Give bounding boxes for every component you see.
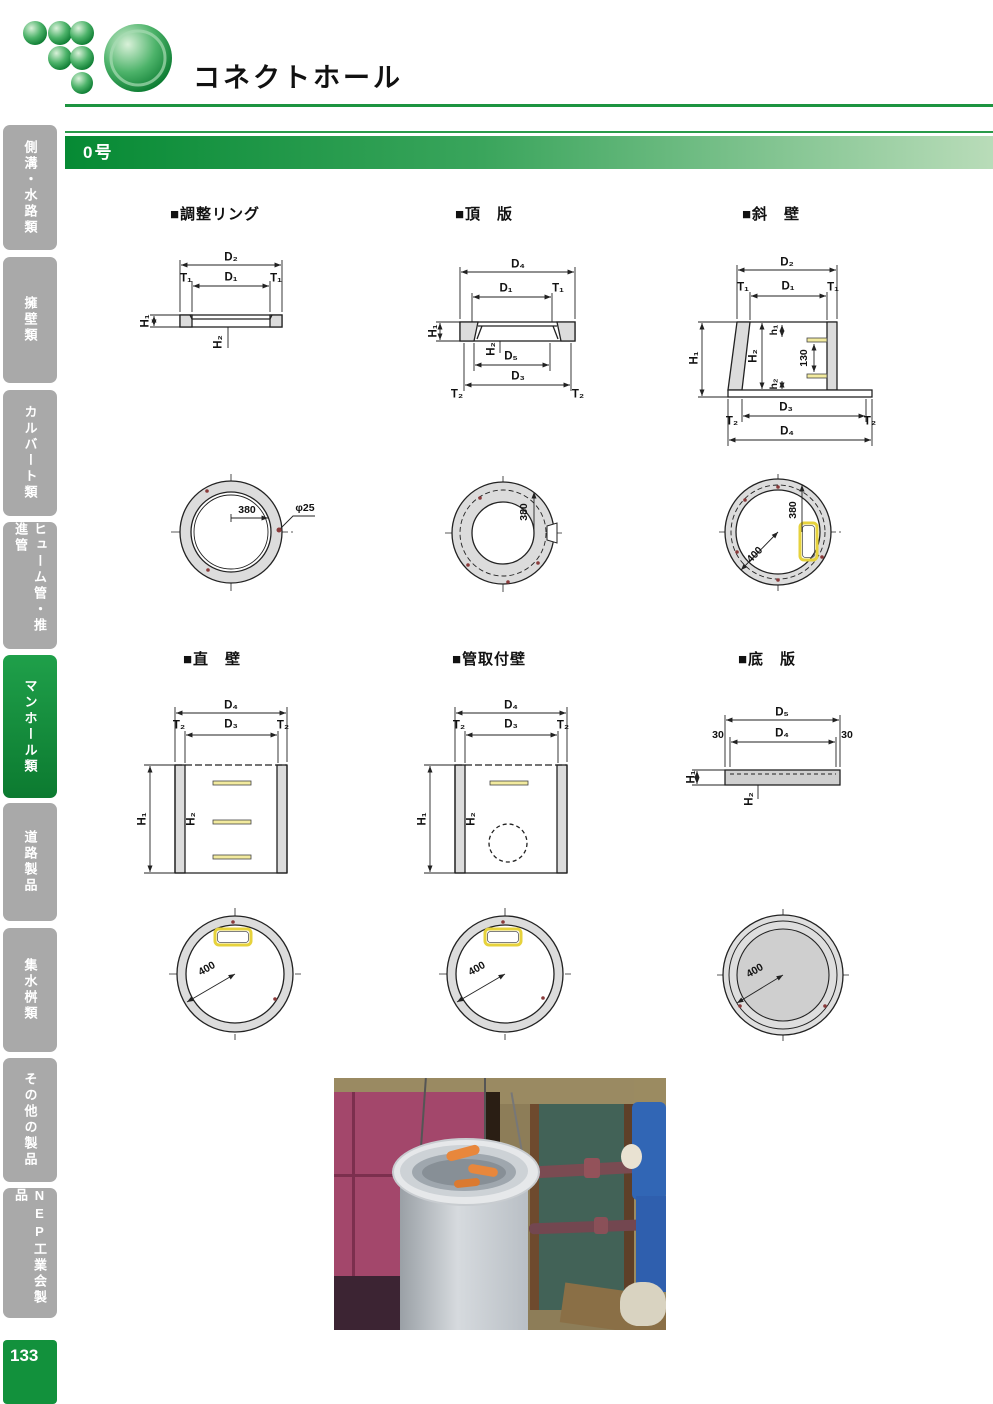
sidebar-tab-gutters[interactable]: 側溝・水路類 <box>3 125 57 250</box>
bottom-slab-plan-drawing <box>715 898 895 1048</box>
bottom-slab-cross-section: D₅ 30 D₄ 30 H₁ H₂ <box>690 695 890 825</box>
catalog-page: { "header": { "title": "コネクトホール" }, "sec… <box>0 0 993 1404</box>
adjust-ring-cross-drawing <box>140 250 340 370</box>
dim-t2-left: T₂ <box>173 720 185 732</box>
straight-wall-cross-section: D₄ T₂ D₃ T₂ H₁ H₂ <box>140 695 320 895</box>
pipe-wall-cross-section: D₄ T₂ D₃ T₂ H₁ H₂ <box>420 695 600 895</box>
tab-label: ヒューム管・推進管 <box>11 522 49 649</box>
tab-label: カルバート類 <box>21 405 40 501</box>
sidebar-tab-manholes-active[interactable]: マンホール類 <box>3 655 57 798</box>
construction-photo <box>334 1078 666 1330</box>
dim-h2: H₂ <box>213 335 225 348</box>
dim-h2-small: h₂ <box>769 378 780 389</box>
dim-d1: D₁ <box>224 272 237 284</box>
dim-t2-left: T₂ <box>453 720 465 732</box>
bottom-slab-plan: 400 <box>715 898 895 1048</box>
tab-label: その他の製品 <box>21 1072 40 1168</box>
title-pipe-wall: ■管取付壁 <box>452 648 526 669</box>
dim-d3: D₃ <box>511 371 525 383</box>
title-slant-wall: ■斜 壁 <box>742 203 800 224</box>
adjust-ring-plan-drawing <box>165 470 345 620</box>
dim-d2: D₂ <box>780 257 793 269</box>
title-top-slab: ■頂 版 <box>455 203 513 224</box>
pipe-wall-plan: 400 <box>435 898 615 1048</box>
dim-h1: H₁ <box>689 351 701 364</box>
dim-t2-left: T₂ <box>726 416 738 428</box>
dim-t1-left: T₁ <box>180 273 192 285</box>
dim-d4: D₄ <box>224 700 238 712</box>
dim-h2: H₂ <box>486 342 498 355</box>
title-adjust-ring: ■調整リング <box>170 203 260 224</box>
dim-t2-right: T₂ <box>557 720 569 732</box>
top-slab-plan: 380 <box>435 470 615 620</box>
slant-wall-plan: 380 400 <box>715 470 895 620</box>
dim-h2: H₂ <box>466 812 478 825</box>
dim-t2-right: T₂ <box>572 389 584 401</box>
dim-d5: D₅ <box>775 707 789 719</box>
page-number-box: 133 <box>3 1340 57 1404</box>
title-bottom-slab: ■底 版 <box>738 648 796 669</box>
adjust-ring-plan: 380 φ25 <box>165 470 345 620</box>
slant-wall-plan-drawing <box>715 470 895 620</box>
page-number: 133 <box>3 1340 57 1366</box>
sidebar-tab-retaining-walls[interactable]: 擁壁類 <box>3 257 57 383</box>
photo-worker-boot <box>620 1282 666 1326</box>
title-straight-wall: ■直 壁 <box>183 648 241 669</box>
dim-h2: H₂ <box>744 792 756 805</box>
dim-d4: D₄ <box>504 700 518 712</box>
dim-hole-dia: φ25 <box>295 503 314 514</box>
tab-label: 集水桝類 <box>21 958 40 1022</box>
dim-d2: D₂ <box>224 252 237 264</box>
pipe-wall-plan-drawing <box>435 898 615 1048</box>
tab-label: マンホール類 <box>21 679 40 775</box>
tab-label: 道路製品 <box>21 830 40 894</box>
sidebar-tab-hume-pipes[interactable]: ヒューム管・推進管 <box>3 522 57 649</box>
tab-label: 側溝・水路類 <box>21 140 40 236</box>
tab-label: 擁壁類 <box>21 296 40 344</box>
dim-d5: D₅ <box>504 351 518 363</box>
straight-wall-plan: 400 <box>165 898 345 1048</box>
photo-worker-pants <box>636 1196 666 1292</box>
dim-step-pitch-130: 130 <box>799 349 810 367</box>
photo-worker-glove <box>621 1144 642 1169</box>
sidebar-tab-catch-basins[interactable]: 集水桝類 <box>3 928 57 1052</box>
photo-pipe-clamp <box>584 1158 600 1178</box>
dim-d3: D₃ <box>779 402 793 414</box>
dim-d1: D₁ <box>781 281 794 293</box>
tab-label: NEP工業会製品 <box>11 1188 49 1318</box>
slant-wall-cross-section: D₂ T₁ D₁ T₁ H₁ H₂ h₁ 130 h₂ D₃ T₂ T₂ D₄ <box>690 250 890 455</box>
header-rule <box>65 104 993 107</box>
sidebar-tab-road-products[interactable]: 道路製品 <box>3 803 57 921</box>
brand-logo-circles <box>20 15 200 125</box>
dim-h2: H₂ <box>748 349 760 362</box>
section-banner: 0号 <box>65 136 993 169</box>
dim-t2-right: T₂ <box>277 720 289 732</box>
adjust-ring-cross-section: D₂ T₁ D₁ T₁ H₁ H₂ <box>140 250 340 370</box>
top-slab-cross-section: D₄ D₁ T₁ H₁ H₂ D₅ D₃ T₂ T₂ <box>430 253 630 423</box>
dim-d4: D₄ <box>511 259 525 271</box>
dim-d4: D₄ <box>780 426 794 438</box>
banner-topline <box>65 131 993 133</box>
photo-rust-frame <box>530 1104 539 1310</box>
dim-h1: H₁ <box>428 324 440 337</box>
dim-h1: H₁ <box>417 812 429 825</box>
dim-radius-380: 380 <box>788 501 799 519</box>
dim-d3: D₃ <box>504 719 518 731</box>
dim-t1-right: T₁ <box>827 282 839 294</box>
dim-radius-380: 380 <box>519 503 530 521</box>
straight-wall-plan-drawing <box>165 898 345 1048</box>
dim-t1-right: T₁ <box>270 273 282 285</box>
dim-t1: T₁ <box>552 283 564 295</box>
top-slab-plan-drawing <box>435 470 615 620</box>
dim-radius-380: 380 <box>238 505 256 516</box>
dim-t2-left: T₂ <box>451 389 463 401</box>
section-label: 0号 <box>83 136 993 169</box>
bottom-slab-cross-drawing <box>690 695 890 825</box>
dim-t1-left: T₁ <box>737 282 749 294</box>
dim-h1: H₁ <box>137 812 149 825</box>
dim-d3: D₃ <box>224 719 238 731</box>
dim-h1: H₁ <box>686 770 698 783</box>
dim-h1: H₁ <box>140 314 152 327</box>
dim-offset-right: 30 <box>841 730 853 741</box>
dim-h2: H₂ <box>186 812 198 825</box>
page-title: コネクトホール <box>193 56 403 95</box>
dim-d1: D₁ <box>499 283 512 295</box>
dim-h1-small: h₁ <box>769 325 780 336</box>
dim-d4: D₄ <box>775 728 789 740</box>
sidebar-tab-culverts[interactable]: カルバート類 <box>3 390 57 516</box>
photo-pipe-clamp <box>594 1217 608 1234</box>
dim-t2-right: T₂ <box>864 416 876 428</box>
sidebar-tab-other-products[interactable]: その他の製品 <box>3 1058 57 1182</box>
dim-offset-left: 30 <box>712 730 724 741</box>
sidebar-tab-nep-products[interactable]: NEP工業会製品 <box>3 1188 57 1318</box>
